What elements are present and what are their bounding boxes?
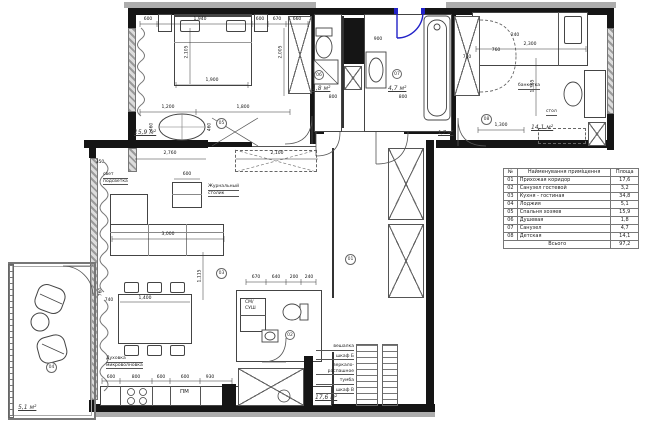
- curtain-bedroom: [138, 28, 145, 116]
- room-circle-kitchen: 03: [216, 268, 227, 279]
- legend-area: 17,6: [611, 177, 639, 185]
- legend-name: Спальня хозяев: [517, 209, 611, 217]
- legend-row: 06 Душевая 1,8: [504, 217, 639, 225]
- room-circle-hallway: 01: [345, 254, 356, 265]
- washbasin-bathroom: [369, 58, 383, 82]
- legend-header-num: №: [504, 169, 518, 177]
- legend-num: 06: [504, 217, 518, 225]
- dim-line: [140, 21, 308, 27]
- legend-total-label: Всього: [504, 241, 611, 249]
- cooktop-burner: [140, 389, 147, 396]
- dim-line: [176, 82, 248, 88]
- legend-name: Душевая: [517, 217, 611, 225]
- legend-row: 04 Лоджия 5,1: [504, 201, 639, 209]
- legend-header-name: Найменування приміщення: [517, 169, 611, 177]
- hall-storage-labels: вешалка шкаф Б зеркало- распашное тумба …: [316, 344, 354, 394]
- legend-row: 07 Санузел 4,7: [504, 225, 639, 233]
- legend-num: 05: [504, 209, 518, 217]
- dim-line: [112, 236, 224, 242]
- legend-header-area: Площа: [611, 169, 639, 177]
- door-loggia: [63, 266, 93, 296]
- bathtub-drain: [434, 24, 440, 30]
- dim-line-vertical: [190, 28, 536, 300]
- dim-line: [246, 279, 316, 285]
- door-bedroom: [285, 116, 312, 144]
- legend-name: Кухня - гостиная: [517, 193, 611, 201]
- door-shower: [316, 132, 340, 156]
- legend-num: 01: [504, 177, 518, 185]
- dim-line: [476, 46, 586, 52]
- legend-name: Лоджия: [517, 201, 611, 209]
- legend-area: 5,1: [611, 201, 639, 209]
- legend-row: 03 Кухня - гостиная 34,8: [504, 193, 639, 201]
- loggia-table: [31, 313, 49, 331]
- legend-header-row: № Найменування приміщення Площа: [504, 169, 639, 177]
- bench-label: банкетка: [518, 83, 540, 90]
- legend-area: 15,9: [611, 209, 639, 217]
- desk-label: стол: [546, 109, 557, 116]
- legend-area: 1,8: [611, 217, 639, 225]
- door-bathroom: [376, 132, 408, 164]
- legend-area: 4,7: [611, 225, 639, 233]
- door-jamb: [421, 8, 425, 14]
- dim-line: [102, 378, 232, 384]
- legend-row: 02 Санузел гостевой 3,2: [504, 185, 639, 193]
- legend-area: 14,1: [611, 233, 639, 241]
- bathtub-inner: [428, 20, 447, 116]
- closet-diagonals: [235, 150, 317, 172]
- room-circle-loggia: 04: [46, 362, 57, 373]
- area-closet: 1,7 м²: [438, 130, 453, 136]
- legend-num: 07: [504, 225, 518, 233]
- door-jamb: [394, 8, 398, 14]
- legend-num: 02: [504, 185, 518, 193]
- toilet-wc-guest: [283, 304, 301, 320]
- dim-line: [140, 109, 290, 115]
- dishwasher-label: ПМ: [180, 390, 189, 396]
- toilet-shower-room: [316, 36, 332, 58]
- legend-total-row: Всього 97,2: [504, 241, 639, 249]
- toilet-tank: [316, 28, 332, 36]
- room-circle-shower: 06: [314, 70, 324, 80]
- coffee-table-label: Журнальныйстолик: [208, 184, 239, 197]
- room-legend-table: № Найменування приміщення Площа 01 Прихо…: [503, 168, 639, 249]
- area-kids: 14,1 м²: [531, 124, 553, 131]
- legend-name: Детская: [517, 233, 611, 241]
- area-bathroom: 4,7 м²: [388, 85, 406, 92]
- legend-num: 03: [504, 193, 518, 201]
- wardrobe-door-arc: [480, 56, 516, 92]
- legend-name: Санузел гостевой: [517, 185, 611, 193]
- kids-chair: [564, 82, 582, 106]
- loggia-chair: [35, 333, 69, 365]
- legend-num: 04: [504, 201, 518, 209]
- washer-label: СМ/СУШ: [245, 300, 256, 311]
- wardrobe-door-arc: [480, 20, 516, 56]
- cooktop-burner: [128, 398, 135, 405]
- room-circle-kids: 08: [481, 114, 492, 125]
- legend-num: 08: [504, 233, 518, 241]
- floor-plan: 05 06 07 08 04 03 01 02 15,9 м² 1,8 м² 4…: [0, 0, 669, 440]
- legend-row: 05 Спальня хозяев 15,9: [504, 209, 639, 217]
- kitchen-sink: [278, 390, 290, 402]
- room-circle-bedroom: 05: [216, 118, 227, 129]
- room-circle-wc: 02: [285, 330, 295, 340]
- legend-name: Прихожая коридор: [517, 177, 611, 185]
- cooktop-burner: [140, 398, 147, 405]
- area-shower: 1,8 м²: [312, 85, 330, 92]
- room-circle-bathroom: 07: [392, 69, 402, 79]
- curtain-living-2: [100, 300, 108, 391]
- legend-name: Санузел: [517, 225, 611, 233]
- legend-total-value: 97,2: [611, 241, 639, 249]
- oven-label: Духовкамикроволновка: [106, 356, 143, 369]
- legend-row: 08 Детская 14,1: [504, 233, 639, 241]
- legend-row: 01 Прихожая коридор 17,6: [504, 177, 639, 185]
- cooktop-burner: [128, 389, 135, 396]
- entrance-door-blue: [397, 12, 423, 38]
- washbasin-bowl: [265, 332, 275, 340]
- loggia-chair: [32, 282, 67, 316]
- legend-area: 3,2: [611, 185, 639, 193]
- light-label: светподсветка: [103, 172, 128, 185]
- area-loggia: 5,1 м²: [18, 404, 36, 411]
- dim-line: [478, 127, 524, 133]
- area-bedroom: 15,9 м²: [134, 129, 156, 136]
- area-hallway: 17,6 м²: [315, 394, 337, 401]
- legend-area: 34,8: [611, 193, 639, 201]
